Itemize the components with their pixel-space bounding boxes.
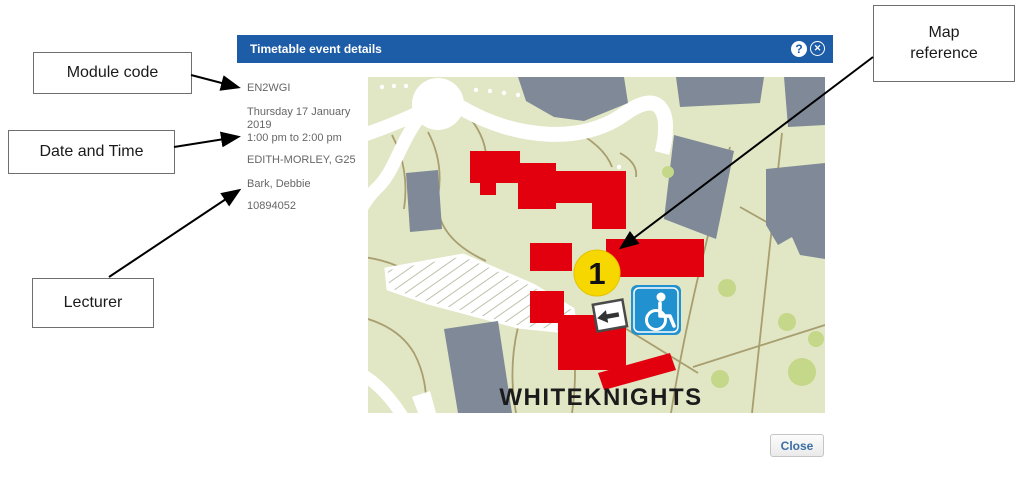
map-marker-number: 1 (588, 256, 605, 291)
campus-label: WHITEKNIGHTS (499, 384, 702, 411)
module-code-value: EN2WGI (247, 82, 365, 95)
arrow-date-time (174, 137, 237, 147)
map-marker: 1 (574, 250, 620, 296)
date-time-label: Date and Time (39, 142, 143, 163)
map-roundabout (412, 78, 464, 130)
annotation-box-module-code: Module code (33, 52, 192, 94)
lecturer-label: Lecturer (64, 293, 123, 314)
dialog-title: Timetable event details (250, 42, 382, 56)
dialog-title-bar: Timetable event details ? ✕ (237, 35, 833, 63)
close-icon[interactable]: ✕ (810, 41, 825, 56)
annotation-box-date-time: Date and Time (8, 130, 175, 174)
event-date-time: Thursday 17 January 2019 1:00 pm to 2:00… (247, 106, 365, 145)
close-button[interactable]: Close (770, 434, 824, 457)
page: Module code Date and Time Lecturer Map r… (0, 0, 1024, 477)
help-icon[interactable]: ? (791, 41, 807, 57)
map-reference-label: Map reference (894, 23, 994, 65)
event-date-line2: 2019 (247, 119, 365, 132)
annotation-box-map-reference: Map reference (873, 5, 1015, 82)
event-lecturer: Bark, Debbie (247, 178, 365, 191)
arrow-lecturer (109, 191, 238, 277)
annotation-box-lecturer: Lecturer (32, 278, 154, 328)
campus-map: 1 WHITEKNIGHTS (368, 77, 825, 413)
event-time: 1:00 pm to 2:00 pm (247, 132, 365, 145)
event-date-line1: Thursday 17 January (247, 106, 365, 119)
module-code-label: Module code (67, 63, 159, 84)
arrow-module-code (191, 75, 237, 87)
event-reference-number: 10894052 (247, 200, 365, 213)
event-location: EDITH-MORLEY, G25 (247, 154, 365, 167)
entrance-arrow-icon (593, 300, 627, 332)
wheelchair-icon (631, 285, 681, 335)
